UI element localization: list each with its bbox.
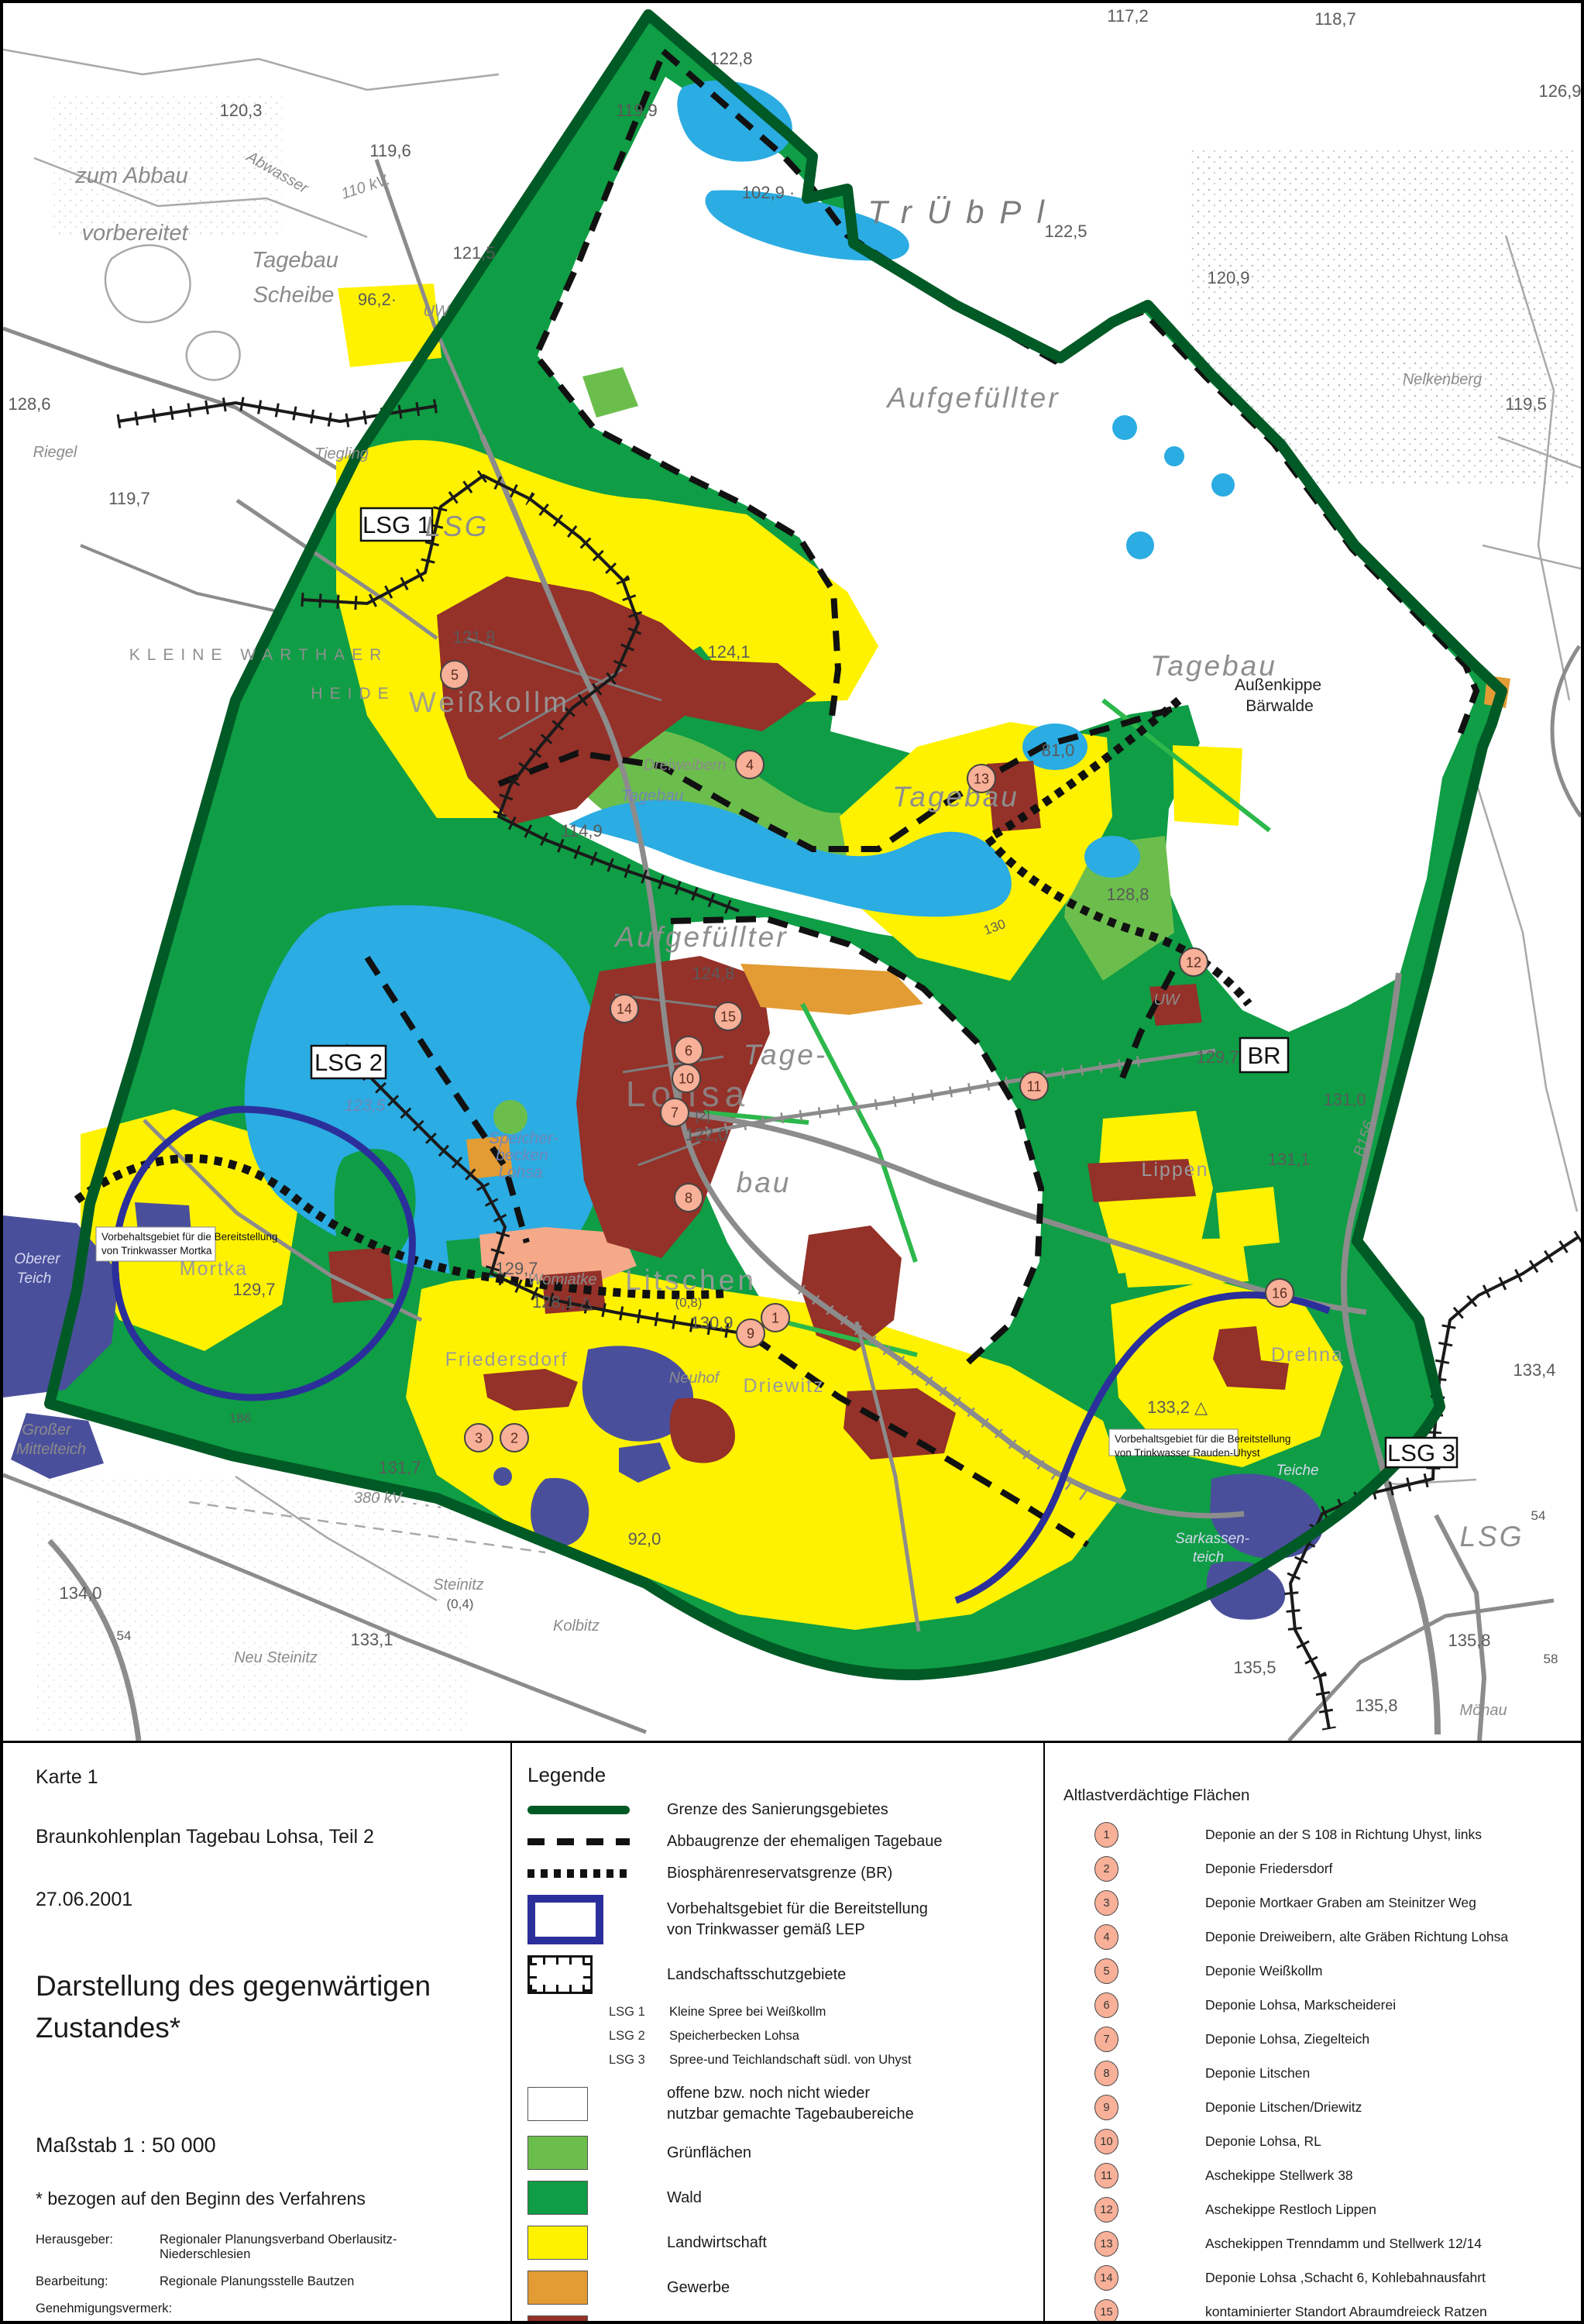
map-label: 118,7: [1314, 9, 1356, 29]
legend-label-line: Landwirtschaft: [667, 2233, 767, 2254]
map-label: 119,9: [616, 101, 657, 120]
legend-label: Wald: [667, 2188, 702, 2209]
map-label: 133,2 △: [1147, 1397, 1208, 1417]
map-label: Aufgefüllter: [885, 382, 1060, 414]
map-label: 133,4: [1513, 1360, 1555, 1380]
map-label: 121,8: [452, 627, 495, 647]
altlast-number-badge: 7: [1094, 2027, 1118, 2052]
map-area: LSG 1LSG 2BRLSG 3Vorbehaltsgebiet für di…: [3, 3, 1581, 1741]
marker-number: 6: [685, 1043, 692, 1059]
altlast-number-badge: 5: [1094, 1958, 1118, 1984]
altlast-number-badge: 10: [1094, 2129, 1118, 2154]
altlast-item: 14Deponie Lohsa ,Schacht 6, Kohlebahnaus…: [1063, 2265, 1581, 2291]
color-swatch: [527, 2136, 588, 2170]
legend-label: offene bzw. noch nicht wiedernutzbar gem…: [667, 2083, 914, 2125]
map-marker-10: 10: [672, 1064, 700, 1092]
map-label: Tage-: [744, 1039, 827, 1071]
color-swatch: [527, 2271, 588, 2305]
map-label: 122,5: [1044, 222, 1087, 241]
map-label: Kolbitz: [553, 1618, 600, 1635]
map-label: [2]: [696, 1109, 710, 1123]
hatch-symbol: [527, 1955, 593, 1994]
map-label: 128,1 △: [532, 1292, 593, 1312]
altlast-number-badge: 14: [1094, 2265, 1118, 2291]
map-box-label: LSG 2: [314, 1049, 383, 1076]
editor-label: Bearbeitung:: [36, 2274, 160, 2289]
altlast-number-badge: 3: [1094, 1890, 1118, 1916]
altlast-text: Deponie Lohsa, Markscheiderei: [1205, 1992, 1396, 2015]
map-label: 126,9: [1538, 81, 1581, 101]
map-box-label: Vorbehaltsgebiet für die Bereitstellung: [1115, 1433, 1290, 1445]
legend-label-line: Landschaftsschutzgebiete: [667, 1965, 846, 1985]
map-label: 186: [229, 1411, 251, 1425]
map-label: LSG: [1459, 1521, 1524, 1552]
legend-swatch-wrap: [527, 2136, 630, 2170]
altlast-number-badge: 9: [1094, 2095, 1118, 2120]
map-label: Bärwalde: [1246, 697, 1314, 715]
marker-number: 7: [671, 1105, 679, 1121]
map-label: 119,5: [1505, 394, 1546, 414]
altlast-text-line: Deponie Lohsa, RL: [1205, 2132, 1321, 2151]
legend-label: Grünflächen: [667, 2143, 751, 2164]
bottom-panel: Karte 1 Braunkohlenplan Tagebau Lohsa, T…: [3, 1741, 1581, 2323]
altlast-number-badge: 11: [1094, 2163, 1118, 2188]
map-box-label: LSG 3: [1387, 1439, 1455, 1466]
marker-number: 8: [685, 1191, 692, 1206]
altlast-number-badge: 12: [1094, 2197, 1118, 2223]
legend-line-item: Biosphärenreservatsgrenze (BR): [527, 1863, 1043, 1884]
map-label: Neuhof: [669, 1370, 721, 1387]
map-box-label: von Trinkwasser Rauden-Uhyst: [1115, 1447, 1260, 1459]
map-label: TrÜbPl: [868, 194, 1060, 230]
map-label: 128,6: [8, 394, 50, 414]
map-label: 102,9 ·: [742, 183, 795, 202]
legend-line-item: Grenze des Sanierungsgebietes: [527, 1800, 1043, 1820]
marker-number: 16: [1272, 1286, 1287, 1301]
map-marker-14: 14: [610, 995, 638, 1023]
altlast-text: Aschekippe Restloch Lippen: [1205, 2197, 1376, 2219]
publisher-value: Regionaler Planungsverband Oberlausitz-N…: [160, 2233, 487, 2262]
altlast-item: 9Deponie Litschen/Driewitz: [1063, 2095, 1581, 2120]
marker-number: 5: [451, 668, 459, 683]
map-label: Mönau: [1459, 1702, 1507, 1719]
altlast-text: kontaminierter Standort Abraumdreieck Ra…: [1205, 2299, 1487, 2322]
altlast-text: Deponie Lohsa, Ziegelteich: [1205, 2027, 1369, 2049]
altlast-item: 6Deponie Lohsa, Markscheiderei: [1063, 1992, 1581, 2018]
legend-column: Legende Grenze des SanierungsgebietesAbb…: [510, 1743, 1043, 2323]
altlast-text-line: Deponie Lohsa ,Schacht 6, Kohlebahnausfa…: [1205, 2268, 1486, 2288]
marker-number: 15: [720, 1009, 736, 1025]
legend-symbol-blue: [527, 1895, 630, 1944]
dotted-symbol: [527, 1869, 630, 1878]
map-label: (0,8): [675, 1295, 703, 1310]
altlast-text: Deponie Lohsa ,Schacht 6, Kohlebahnausfa…: [1205, 2265, 1486, 2288]
altlast-text-line: Deponie Dreiweibern, alte Gräben Richtun…: [1205, 1927, 1508, 1947]
altlast-number-badge: 4: [1094, 1924, 1118, 1950]
lsg-code: LSG 3: [609, 2053, 669, 2068]
map-label: Steinitz: [433, 1576, 484, 1593]
plan-date: 27.06.2001: [36, 1889, 487, 1911]
marker-number: 11: [1027, 1079, 1042, 1095]
map-label: 129,7: [495, 1259, 538, 1278]
marker-number: 13: [974, 772, 989, 787]
editor-value: Regionale Planungsstelle Bautzen: [160, 2274, 354, 2289]
map-label: Tagebau: [892, 781, 1019, 813]
map-marker-9: 9: [737, 1319, 765, 1347]
altlast-item: 2Deponie Friedersdorf: [1063, 1856, 1581, 1882]
map-marker-11: 11: [1020, 1072, 1048, 1100]
altlast-text: Deponie Weißkollm: [1205, 1958, 1322, 1981]
legend-label-line: Gewerbe: [667, 2278, 730, 2298]
map-label: 54: [1531, 1508, 1546, 1523]
map-label: 130,9: [690, 1313, 733, 1332]
map-label: Weißkollm: [409, 686, 570, 718]
marker-number: 3: [475, 1431, 483, 1446]
map-label: Speicher-: [489, 1129, 558, 1147]
map-marker-6: 6: [675, 1037, 703, 1064]
map-label: 129,7: [232, 1280, 275, 1299]
green-symbol: [527, 1806, 630, 1814]
map-label: KLEINE WARTHAER: [129, 646, 389, 664]
map-label: Lohsa: [498, 1164, 542, 1181]
legend-area-item: Gewerbe: [527, 2271, 1043, 2305]
map-label: 134,0: [59, 1583, 101, 1603]
marker-number: 10: [679, 1071, 694, 1087]
altlast-item: 3Deponie Mortkaer Graben am Steinitzer W…: [1063, 1890, 1581, 1916]
map-label: Riegel: [33, 444, 77, 461]
map-label: Drehna: [1271, 1344, 1344, 1366]
map-label: 135,8: [1448, 1631, 1490, 1650]
map-label: Tagebau: [252, 248, 338, 273]
map-label: UW: [1153, 992, 1180, 1009]
altlast-number-badge: 8: [1094, 2061, 1118, 2086]
altlast-text-line: Deponie Friedersdorf: [1205, 1859, 1332, 1879]
altlast-number-badge: 15: [1094, 2299, 1118, 2324]
altlast-item: 15kontaminierter Standort Abraumdreieck …: [1063, 2299, 1581, 2324]
altlast-text-line: Aschekippen Trenndamm und Stellwerk 12/1…: [1205, 2234, 1482, 2254]
altlast-text: Deponie Friedersdorf: [1205, 1856, 1332, 1879]
legend-label-line: von Trinkwasser gemäß LEP: [667, 1920, 928, 1941]
legend-label-line: offene bzw. noch nicht wieder: [667, 2083, 914, 2104]
legend-label: Gewerbe: [667, 2278, 730, 2298]
legend-swatch-wrap: [527, 2271, 630, 2305]
map-marker-16: 16: [1266, 1279, 1294, 1307]
legend-label-line: Grenze des Sanierungsgebietes: [667, 1800, 888, 1820]
altlast-item: 8Deponie Litschen: [1063, 2061, 1581, 2086]
map-label: 92,0: [628, 1529, 661, 1549]
map-box-label: BR: [1247, 1042, 1280, 1069]
map-label: 128,8: [1106, 885, 1149, 904]
altlast-item: 4Deponie Dreiweibern, alte Gräben Richtu…: [1063, 1924, 1581, 1950]
legend-symbol-hatch: [527, 1955, 630, 1994]
lsg-name: Spree-und Teichlandschaft südl. von Uhys…: [669, 2053, 911, 2068]
map-label: Driewitz: [744, 1375, 825, 1397]
legend-line-item: Landschaftsschutzgebiete: [527, 1955, 1043, 1994]
color-swatch: [527, 2087, 588, 2121]
map-label: Scheibe: [253, 283, 335, 308]
altlast-items: 1Deponie an der S 108 in Richtung Uhyst,…: [1063, 1822, 1581, 2324]
legend-area-item: Grünflächen: [527, 2136, 1043, 2170]
map-label: UW: [423, 303, 450, 320]
altlast-text: Deponie Mortkaer Graben am Steinitzer We…: [1205, 1890, 1476, 1913]
map-label: Teich: [17, 1270, 52, 1287]
legend-label: Grenze des Sanierungsgebietes: [667, 1800, 888, 1820]
map-label: teich: [1193, 1549, 1224, 1566]
map-label: Oberer: [14, 1251, 60, 1267]
color-swatch: [527, 2226, 588, 2260]
legend-symbol-green: [527, 1806, 630, 1814]
legend-line-item: Abbaugrenze der ehemaligen Tagebaue: [527, 1831, 1043, 1852]
lsg-sub-item: LSG 2Speicherbecken Lohsa: [609, 2029, 1043, 2044]
publisher-label: Herausgeber:: [36, 2233, 160, 2262]
map-number: Karte 1: [36, 1766, 487, 1789]
altlast-item: 11Aschekippe Stellwerk 38: [1063, 2163, 1581, 2188]
dashed-symbol: [527, 1838, 630, 1845]
map-label: 131,1: [1267, 1150, 1310, 1169]
legend-line-items: Grenze des SanierungsgebietesAbbaugrenze…: [527, 1800, 1043, 2068]
map-marker-15: 15: [714, 1002, 742, 1030]
map-heading: Darstellung des gegenwärtigen Zustandes*: [36, 1965, 487, 2048]
legend-line-item: Vorbehaltsgebiet für die Bereitstellungv…: [527, 1895, 1043, 1944]
approval-label: Genehmigungsvermerk:: [36, 2302, 487, 2316]
legend-label: Landwirtschaft: [667, 2233, 767, 2254]
altlast-item: 10Deponie Lohsa, RL: [1063, 2129, 1581, 2154]
blue-symbol: [527, 1895, 603, 1944]
altlast-text-line: Aschekippe Restloch Lippen: [1205, 2200, 1376, 2219]
legend-area-item: Siedlung: [527, 2315, 1043, 2324]
legend-area-item: Landwirtschaft: [527, 2226, 1043, 2260]
map-label: 124,1: [707, 642, 750, 662]
legend-swatch-wrap: [527, 2226, 630, 2260]
map-label: 119,6: [369, 141, 411, 160]
marker-number: 1: [771, 1311, 779, 1326]
legend-label-line: Wald: [667, 2188, 702, 2209]
map-marker-4: 4: [736, 751, 764, 779]
map-label: Womiatke: [528, 1271, 597, 1288]
map-label: 54: [117, 1628, 132, 1643]
legend-label: Abbaugrenze der ehemaligen Tagebaue: [667, 1831, 942, 1852]
altlast-number-badge: 1: [1094, 1822, 1118, 1848]
legend-label-line: Abbaugrenze der ehemaligen Tagebaue: [667, 1831, 942, 1852]
altlast-number-badge: 13: [1094, 2231, 1118, 2257]
map-box-label: LSG 1: [362, 511, 431, 538]
map-box-label: Vorbehaltsgebiet für die Bereitstellung: [101, 1231, 277, 1243]
map-label: Außenkippe: [1235, 676, 1321, 694]
map-label: 117,2: [1107, 6, 1148, 26]
map-label: Großer: [22, 1422, 72, 1439]
title-block: Karte 1 Braunkohlenplan Tagebau Lohsa, T…: [3, 1743, 510, 2323]
map-label: 135,5: [1233, 1658, 1276, 1677]
map-label: 124,8: [692, 964, 734, 983]
map-label: 133,1: [350, 1630, 393, 1649]
map-label: Nelkenberg: [1403, 371, 1482, 388]
legend-title: Legende: [527, 1763, 1043, 1787]
map-heading-line2: Zustandes*: [36, 2012, 180, 2044]
legend-label: Landschaftsschutzgebiete: [667, 1965, 846, 1985]
altlast-text-line: Deponie Litschen/Driewitz: [1205, 2098, 1362, 2117]
legend-swatch-wrap: [527, 2087, 630, 2121]
map-label: Tagebau: [621, 787, 684, 805]
marker-number: 2: [510, 1431, 518, 1446]
map-canvas: LSG 1LSG 2BRLSG 3Vorbehaltsgebiet für di…: [3, 3, 1581, 1741]
altlast-text: Deponie Lohsa, RL: [1205, 2129, 1321, 2151]
map-marker-8: 8: [675, 1184, 703, 1212]
map-label: Sarkassen-: [1175, 1531, 1249, 1547]
altlast-column: Altlastverdächtige Flächen 1Deponie an d…: [1043, 1743, 1581, 2323]
altlast-text-line: Aschekippe Stellwerk 38: [1205, 2166, 1353, 2185]
altlast-number-badge: 6: [1094, 1992, 1118, 2018]
map-label: 380 kV: [354, 1490, 404, 1507]
publisher-row: Herausgeber: Regionaler Planungsverband …: [36, 2233, 487, 2262]
map-label: 131,7: [378, 1458, 421, 1477]
altlast-text-line: Deponie Lohsa, Markscheiderei: [1205, 1996, 1396, 2015]
lsg-code: LSG 1: [609, 2005, 669, 2020]
map-label: 114,9: [561, 821, 602, 841]
altlast-item: 13Aschekippen Trenndamm und Stellwerk 12…: [1063, 2231, 1581, 2257]
map-label: Teiche: [1276, 1463, 1318, 1479]
altlast-text: Deponie Litschen/Driewitz: [1205, 2095, 1362, 2117]
map-label: becken: [496, 1147, 548, 1164]
map-sheet: LSG 1LSG 2BRLSG 3Vorbehaltsgebiet für di…: [0, 0, 1584, 2324]
map-label: 110 kV.: [339, 171, 392, 203]
map-label: 123,5: [345, 1097, 386, 1115]
map-label: (0,4): [447, 1597, 474, 1611]
legend-label: Biosphärenreservatsgrenze (BR): [667, 1863, 892, 1884]
altlast-text-line: Deponie Litschen: [1205, 2064, 1310, 2083]
marker-number: 9: [747, 1326, 754, 1342]
altlast-number-badge: 2: [1094, 1856, 1118, 1882]
legend-area-items: offene bzw. noch nicht wiedernutzbar gem…: [527, 2083, 1043, 2324]
map-marker-13: 13: [967, 765, 995, 792]
color-swatch: [527, 2181, 588, 2215]
lsg-code: LSG 2: [609, 2029, 669, 2044]
altlast-item: 1Deponie an der S 108 in Richtung Uhyst,…: [1063, 1822, 1581, 1848]
map-label: LSG: [424, 511, 489, 542]
lsg-name: Speicherbecken Lohsa: [669, 2029, 799, 2044]
map-label: Dreiweibern: [644, 757, 727, 774]
editor-row: Bearbeitung: Regionale Planungsstelle Ba…: [36, 2274, 487, 2289]
plan-title: Braunkohlenplan Tagebau Lohsa, Teil 2: [36, 1826, 487, 1848]
color-swatch: [527, 2315, 588, 2324]
map-box-label: von Trinkwasser Mortka: [101, 1245, 212, 1257]
altlast-text: Deponie an der S 108 in Richtung Uhyst, …: [1205, 1822, 1482, 1844]
legend-swatch-wrap: [527, 2181, 630, 2215]
map-label: HEIDE: [311, 685, 395, 703]
map-label: 120,9: [1207, 268, 1249, 287]
marker-number: 4: [746, 758, 754, 773]
map-label: 120,3: [219, 101, 262, 120]
map-marker-12: 12: [1180, 948, 1208, 976]
map-label: Friedersdorf: [445, 1349, 569, 1370]
marker-number: 14: [617, 1002, 632, 1017]
map-label: Tiegling: [314, 445, 369, 462]
map-label: Aufgefüllter: [613, 921, 788, 953]
altlast-text: Aschekippen Trenndamm und Stellwerk 12/1…: [1205, 2231, 1482, 2254]
legend-symbol-dashed: [527, 1838, 630, 1845]
legend-swatch-wrap: [527, 2315, 630, 2324]
altlast-text: Aschekippe Stellwerk 38: [1205, 2163, 1353, 2185]
map-marker-2: 2: [500, 1424, 528, 1452]
map-label: 131,0: [1323, 1090, 1366, 1109]
map-label: 81,0: [1042, 741, 1075, 760]
map-label: bau: [737, 1167, 792, 1198]
altlast-text: Deponie Dreiweibern, alte Gräben Richtun…: [1205, 1924, 1508, 1947]
altlast-text-line: Deponie Weißkollm: [1205, 1961, 1322, 1981]
altlast-item: 12Aschekippe Restloch Lippen: [1063, 2197, 1581, 2223]
map-marker-7: 7: [661, 1098, 689, 1126]
marker-number: 12: [1186, 955, 1201, 971]
map-label: 58: [1544, 1652, 1558, 1666]
altlast-text-line: Deponie Mortkaer Graben am Steinitzer We…: [1205, 1893, 1476, 1913]
legend-area-item: offene bzw. noch nicht wiedernutzbar gem…: [527, 2083, 1043, 2125]
map-label: Neu Steinitz: [234, 1649, 318, 1666]
map-label: 135,8: [1355, 1696, 1397, 1715]
legend-symbol-dotted: [527, 1869, 630, 1878]
map-label: 122,0: [685, 1125, 727, 1144]
map-label: Lippen: [1141, 1159, 1208, 1181]
map-scale: Maßstab 1 : 50 000: [36, 2133, 487, 2157]
map-marker-1: 1: [761, 1304, 789, 1332]
map-label: vorbereitet: [81, 221, 189, 246]
lsg-name: Kleine Spree bei Weißkollm: [669, 2005, 826, 2020]
altlast-item: 7Deponie Lohsa, Ziegelteich: [1063, 2027, 1581, 2052]
scale-footnote: * bezogen auf den Beginn des Verfahrens: [36, 2188, 487, 2209]
map-heading-line1: Darstellung des gegenwärtigen: [36, 1970, 431, 2002]
map-label: 119,7: [108, 489, 149, 508]
altlast-item: 5Deponie Weißkollm: [1063, 1958, 1581, 1984]
legend-label-line: Grünflächen: [667, 2143, 751, 2164]
altlast-title: Altlastverdächtige Flächen: [1063, 1786, 1581, 1805]
legend-label-line: Vorbehaltsgebiet für die Bereitstellung: [667, 1899, 928, 1920]
legend-area-item: Wald: [527, 2181, 1043, 2215]
altlast-text: Deponie Litschen: [1205, 2061, 1310, 2083]
map-label: Litschen: [625, 1264, 757, 1296]
map-marker-3: 3: [465, 1424, 493, 1452]
map-marker-5: 5: [441, 661, 469, 689]
lsg-sub-item: LSG 3Spree-und Teichlandschaft südl. von…: [609, 2053, 1043, 2068]
lsg-sub-item: LSG 1Kleine Spree bei Weißkollm: [609, 2005, 1043, 2020]
altlast-text-line: Deponie Lohsa, Ziegelteich: [1205, 2030, 1369, 2049]
altlast-text-line: Deponie an der S 108 in Richtung Uhyst, …: [1205, 1825, 1482, 1844]
map-label: 129,7: [1196, 1047, 1239, 1067]
map-label: 121,5: [452, 243, 495, 263]
altlast-text-line: kontaminierter Standort Abraumdreieck Ra…: [1205, 2302, 1487, 2322]
map-label: 122,8: [710, 49, 752, 68]
legend-label: Vorbehaltsgebiet für die Bereitstellungv…: [667, 1899, 928, 1941]
map-label: Mittelteich: [16, 1441, 86, 1458]
map-label: zum Abbau: [74, 163, 188, 188]
map-label: 96,2·: [358, 290, 397, 309]
map-label: Mortka: [180, 1258, 248, 1280]
legend-label-line: Biosphärenreservatsgrenze (BR): [667, 1863, 892, 1884]
legend-label-line: nutzbar gemachte Tagebaubereiche: [667, 2104, 914, 2125]
